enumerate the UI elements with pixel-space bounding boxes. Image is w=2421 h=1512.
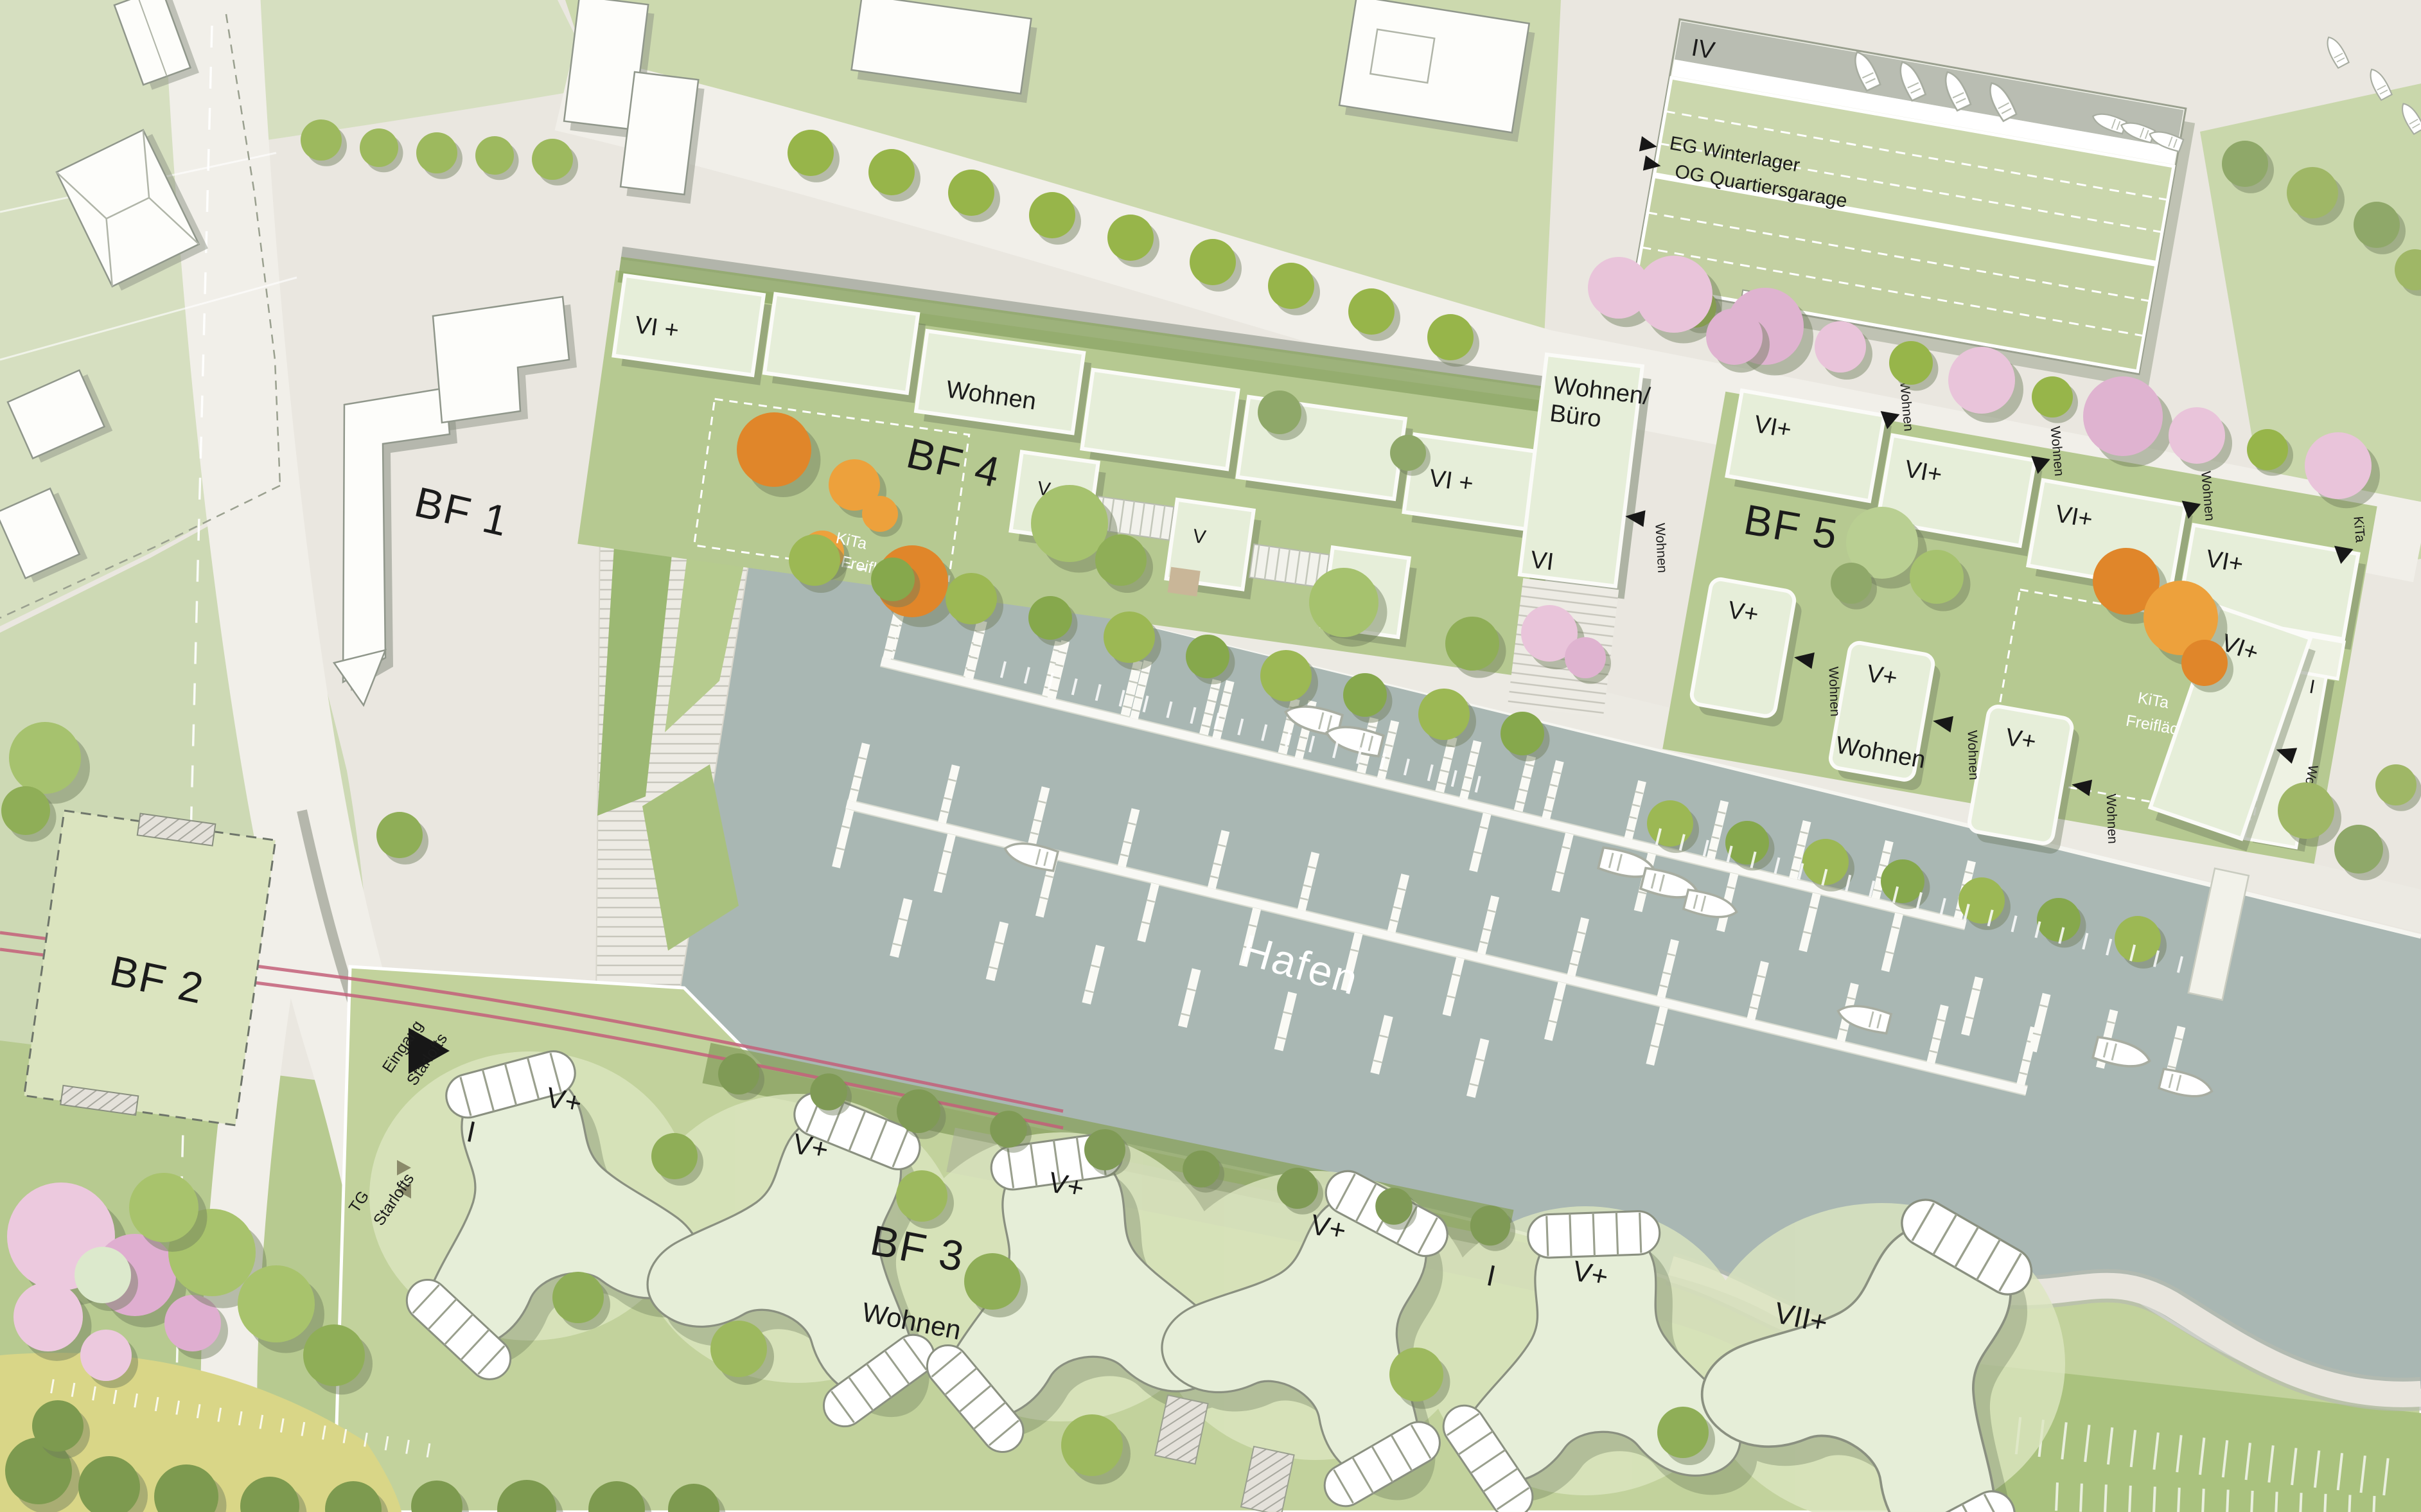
bf5-kita-entrance-label: KiTa <box>2350 516 2368 543</box>
bf5-tower2-ent-label: Wohnen <box>1964 730 1981 780</box>
tower-entrance-label: Wohnen <box>1652 523 1669 574</box>
bf5-tower1-label: V+ <box>1726 597 1761 629</box>
bf5-tower3-ent-label: Wohnen <box>2104 793 2120 844</box>
bf5-tower3-label: V+ <box>2003 724 2038 756</box>
bf5-tower1-ent-label: Wohnen <box>1826 666 1842 717</box>
site-plan-canvas: IV EG Winterlager OG Quartiersgarage VI … <box>0 0 2421 1512</box>
bf5-tower2-label: V+ <box>1865 660 1899 692</box>
tower-floors-label: VI <box>1529 546 1555 576</box>
